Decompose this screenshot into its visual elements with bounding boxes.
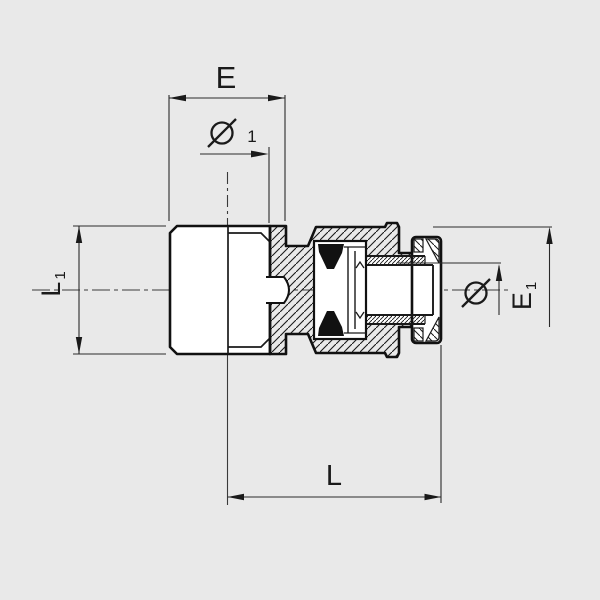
- fitting-section-drawing: E 1 L1 E1 L: [0, 0, 600, 600]
- collet-cartridge: [314, 241, 366, 339]
- sleeve-block: [170, 226, 270, 354]
- technical-drawing-canvas: E 1 L1 E1 L: [0, 0, 600, 600]
- end-cap: [412, 237, 441, 343]
- dimension-e-label: E: [216, 60, 237, 95]
- dimension-l-label: L: [326, 460, 342, 492]
- dimension-inner-diameter-index: 1: [247, 127, 256, 146]
- bore-nose: [266, 277, 289, 303]
